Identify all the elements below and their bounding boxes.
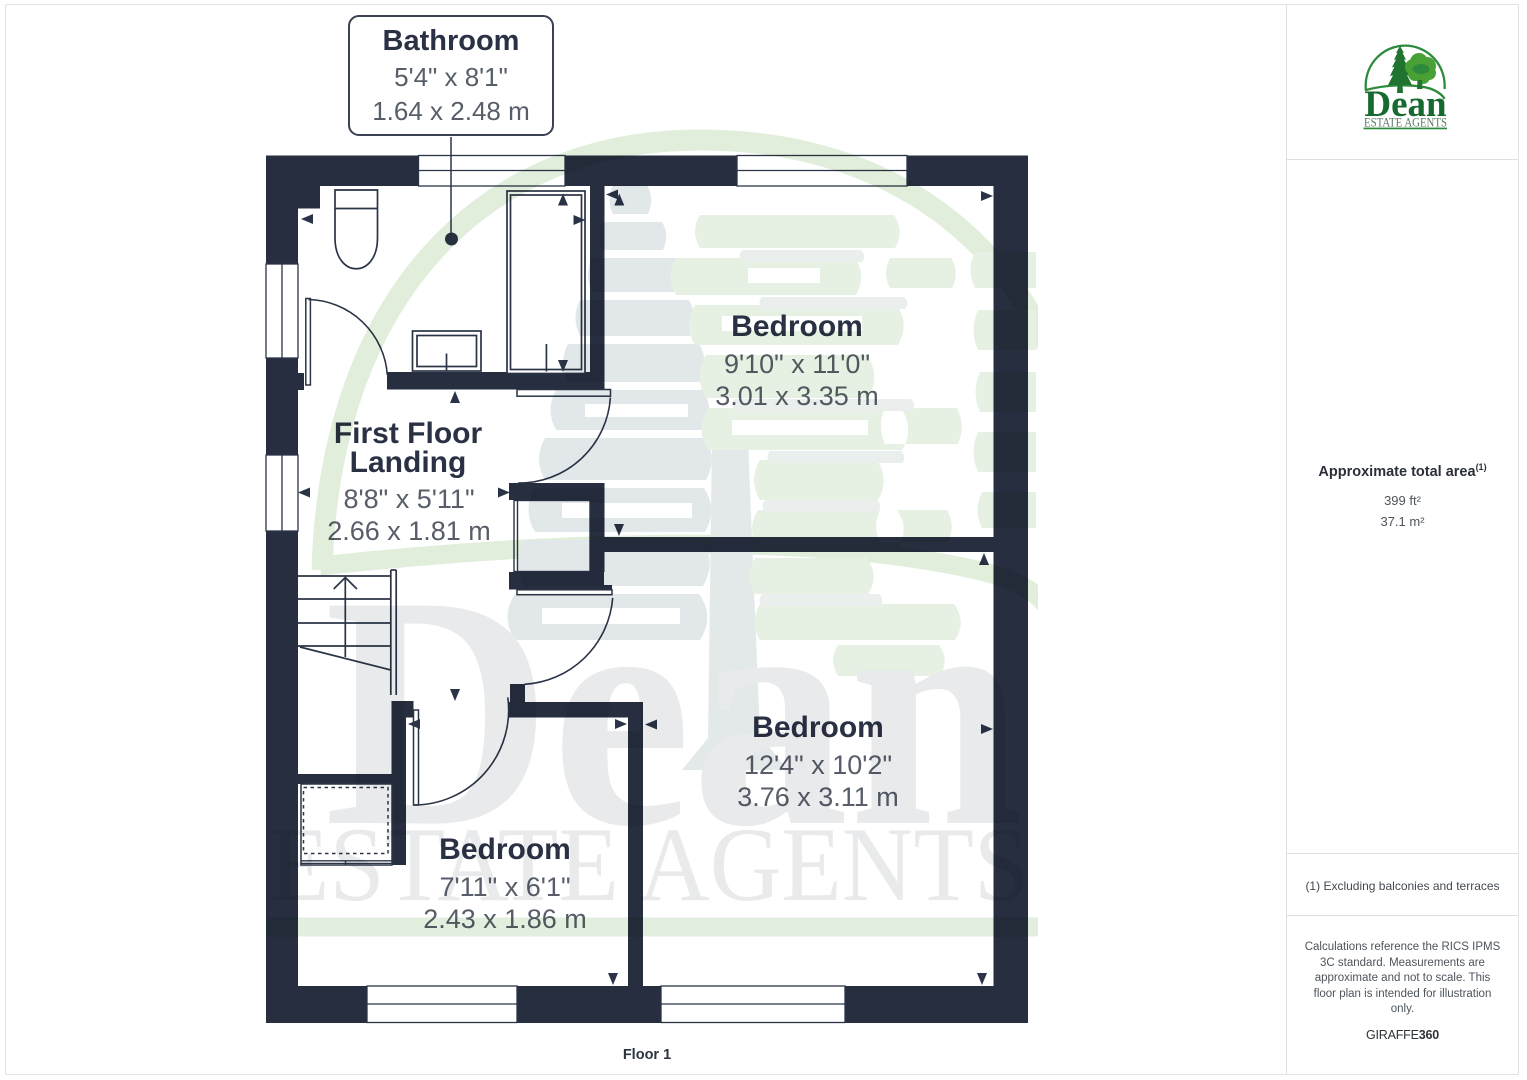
svg-text:5'4" x 8'1": 5'4" x 8'1": [394, 62, 508, 92]
svg-text:ESTATE AGENTS: ESTATE AGENTS: [1364, 116, 1447, 130]
svg-text:Landing: Landing: [350, 446, 467, 479]
svg-text:Floor 1: Floor 1: [623, 1047, 671, 1063]
svg-text:Bathroom: Bathroom: [383, 25, 520, 57]
svg-text:ESTATE AGENTS: ESTATE AGENTS: [269, 806, 1029, 923]
svg-text:8'8" x 5'11": 8'8" x 5'11": [343, 484, 474, 514]
svg-text:1.64 x 2.48 m: 1.64 x 2.48 m: [372, 96, 530, 126]
